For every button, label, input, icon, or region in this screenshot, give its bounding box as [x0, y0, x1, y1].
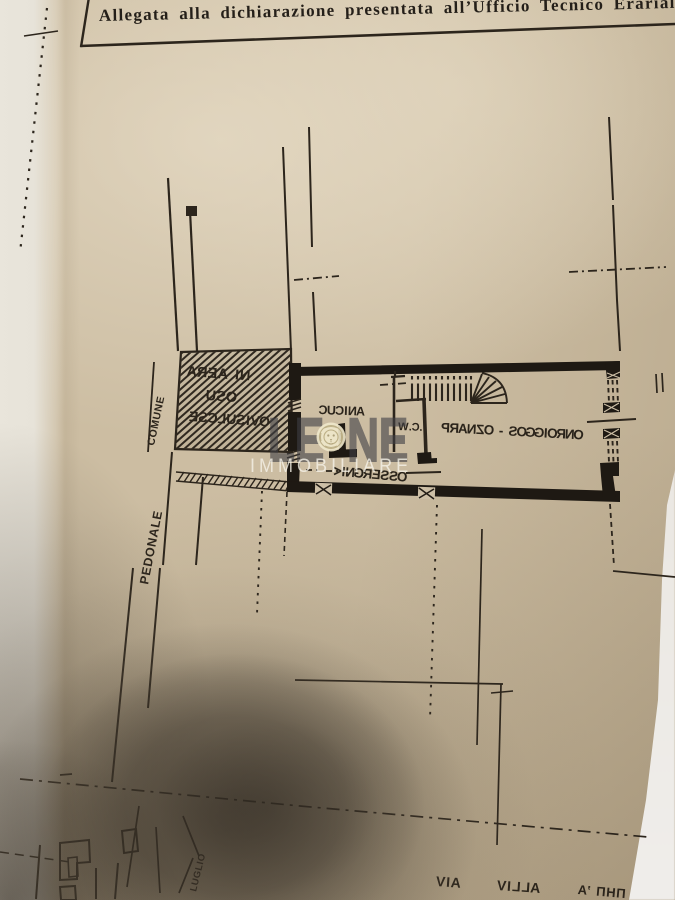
svg-text:Π: Π [616, 885, 627, 900]
svg-text:A: A [216, 366, 228, 383]
svg-text:G: G [533, 425, 544, 441]
svg-text:U: U [226, 411, 237, 428]
svg-text:A: A [186, 364, 198, 381]
svg-text:U: U [327, 403, 337, 417]
svg-text:O: O [258, 413, 270, 430]
svg-text:O: O [483, 422, 494, 438]
svg-text:-: - [498, 423, 503, 438]
svg-text:N: N [466, 421, 477, 436]
svg-text:C: C [335, 404, 345, 418]
svg-text:O: O [396, 469, 408, 485]
svg-text:.: . [419, 422, 422, 434]
svg-text:L: L [521, 879, 531, 896]
svg-text:R: R [196, 365, 208, 382]
svg-text:C: C [207, 409, 218, 426]
svg-text:P: P [441, 420, 451, 435]
svg-text:W: W [397, 421, 408, 433]
svg-text:A: A [450, 874, 461, 891]
svg-text:L: L [217, 410, 227, 427]
svg-text:N: N [348, 404, 358, 418]
svg-text:I: I [344, 404, 348, 418]
svg-text:Allegata alla dichiarazione pr: Allegata alla dichiarazione presentata a… [99, 0, 675, 25]
svg-text:L: L [511, 878, 521, 895]
svg-text:O: O [573, 427, 584, 443]
svg-text:N: N [239, 368, 251, 385]
svg-text:E: E [189, 408, 199, 425]
svg-text:V: V [496, 877, 507, 894]
svg-text:S: S [236, 411, 246, 428]
svg-text:U: U [205, 388, 217, 405]
svg-text:A: A [577, 882, 588, 898]
svg-text:C: C [318, 403, 328, 417]
svg-text:A: A [530, 879, 541, 896]
svg-text:S: S [380, 467, 390, 483]
svg-text:E: E [207, 365, 218, 382]
svg-text:S: S [198, 409, 208, 426]
svg-text:C: C [411, 421, 419, 433]
svg-text:A: A [356, 404, 366, 418]
svg-text:LUGLIO: LUGLIO [188, 852, 208, 892]
svg-text:S: S [215, 389, 226, 406]
svg-text:H: H [606, 884, 617, 900]
svg-text:V: V [435, 873, 446, 890]
svg-text:Π: Π [596, 884, 607, 900]
svg-text:O: O [225, 389, 237, 406]
svg-text:E: E [371, 467, 381, 483]
svg-text:PEDONALE: PEDONALE [137, 509, 165, 585]
